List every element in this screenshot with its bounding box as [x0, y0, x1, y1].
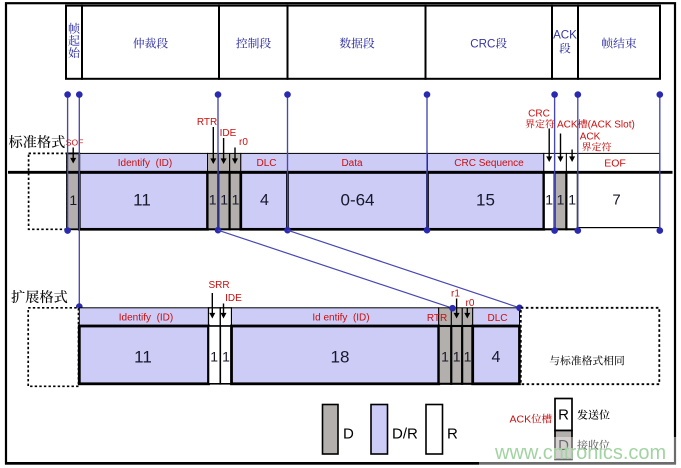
svg-text:18: 18	[331, 348, 350, 367]
svg-text:r1: r1	[451, 289, 460, 300]
svg-text:1: 1	[568, 192, 576, 208]
svg-text:IDE: IDE	[220, 128, 237, 139]
svg-text:15: 15	[476, 191, 495, 210]
svg-text:0-64: 0-64	[340, 191, 374, 210]
svg-text:CRC: CRC	[528, 109, 550, 120]
svg-text:1: 1	[209, 192, 217, 208]
svg-text:CRC Sequence: CRC Sequence	[454, 158, 524, 169]
svg-text:D: D	[343, 426, 354, 443]
svg-text:ACK: ACK	[553, 29, 577, 42]
svg-text:1: 1	[69, 192, 77, 208]
svg-text:SRR: SRR	[208, 280, 229, 291]
svg-text:11: 11	[134, 348, 152, 367]
svg-text:Identify (ID): Identify (ID)	[118, 158, 172, 169]
svg-text:1: 1	[441, 349, 449, 365]
svg-text:11: 11	[133, 191, 151, 210]
svg-text:ACK: ACK	[557, 120, 578, 131]
svg-text:1: 1	[222, 349, 230, 365]
svg-text:www.cntronics.com: www.cntronics.com	[494, 442, 666, 464]
svg-text:1: 1	[220, 192, 228, 208]
svg-text:1: 1	[464, 349, 472, 365]
svg-text:1: 1	[232, 192, 240, 208]
svg-text:DLC: DLC	[256, 158, 276, 169]
svg-text:4: 4	[260, 192, 269, 209]
svg-text:Id entify (ID): Id entify (ID)	[312, 313, 369, 324]
svg-text:(ACK Slot): (ACK Slot)	[588, 120, 635, 131]
svg-text:D/R: D/R	[392, 426, 418, 443]
svg-text:r0: r0	[239, 137, 248, 148]
svg-text:7: 7	[612, 192, 620, 209]
svg-text:DLC: DLC	[487, 313, 507, 324]
svg-text:1: 1	[210, 349, 218, 365]
svg-text:EOF: EOF	[604, 157, 626, 169]
svg-text:1: 1	[453, 349, 461, 365]
svg-text:ACK: ACK	[580, 132, 601, 143]
svg-text:RTR: RTR	[197, 117, 217, 128]
svg-text:Identify (ID): Identify (ID)	[119, 313, 173, 324]
svg-text:CRC: CRC	[470, 38, 495, 51]
svg-text:R: R	[447, 426, 458, 443]
svg-text:R: R	[558, 407, 569, 424]
svg-text:1: 1	[545, 192, 553, 208]
svg-text:RTR: RTR	[427, 313, 447, 324]
svg-text:IDE: IDE	[225, 293, 242, 304]
svg-text:4: 4	[492, 349, 501, 366]
svg-text:Data: Data	[341, 158, 363, 169]
svg-text:ACK: ACK	[510, 414, 532, 426]
svg-text:1: 1	[557, 192, 565, 208]
svg-text:SOF: SOF	[66, 138, 83, 148]
